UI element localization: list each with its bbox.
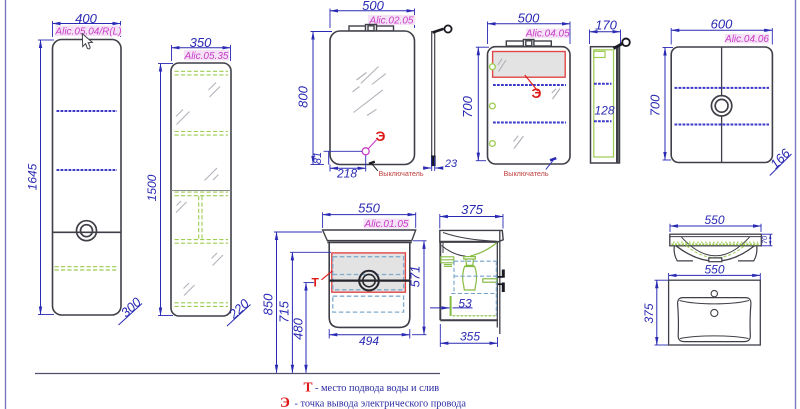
svg-text:700: 700 (648, 94, 663, 116)
svg-text:Alic.05.35: Alic.05.35 (184, 51, 229, 62)
svg-text:375: 375 (461, 202, 483, 217)
svg-text:715: 715 (276, 300, 291, 322)
svg-text:Выключатель: Выключатель (379, 169, 424, 178)
svg-text:218: 218 (336, 167, 357, 181)
svg-text:Т: Т (304, 380, 313, 395)
svg-text:Э: Э (532, 85, 542, 101)
svg-text:Alic.01.05: Alic.01.05 (364, 219, 409, 230)
svg-text:- точка вывода электрического: - точка вывода электрического провода (295, 399, 467, 409)
svg-text:Alic.05.04/R(L): Alic.05.04/R(L) (54, 27, 121, 38)
svg-text:Э: Э (376, 128, 386, 144)
svg-text:81: 81 (312, 152, 324, 164)
svg-text:128: 128 (594, 104, 614, 118)
svg-text:1645: 1645 (26, 163, 40, 190)
svg-text:494: 494 (359, 334, 379, 348)
svg-text:Alic.04.05: Alic.04.05 (525, 29, 570, 40)
svg-text:550: 550 (704, 213, 724, 227)
svg-text:Выключатель: Выключатель (504, 169, 549, 178)
svg-text:800: 800 (296, 85, 311, 107)
svg-text:500: 500 (518, 11, 540, 26)
svg-text:53: 53 (458, 296, 472, 310)
svg-text:23: 23 (444, 158, 458, 170)
svg-text:170: 170 (595, 18, 617, 33)
svg-text:70: 70 (760, 235, 769, 244)
svg-text:Э: Э (280, 395, 290, 409)
svg-text:700: 700 (460, 95, 475, 117)
svg-text:355: 355 (460, 330, 480, 344)
svg-text:1500: 1500 (145, 174, 159, 201)
svg-text:480: 480 (290, 317, 305, 339)
svg-text:571: 571 (408, 266, 423, 288)
svg-text:550: 550 (358, 201, 380, 216)
svg-text:600: 600 (711, 17, 733, 32)
svg-text:- место подвода воды и слив: - место подвода воды и слив (315, 383, 439, 394)
svg-text:Alic.04.06: Alic.04.06 (724, 34, 769, 45)
svg-text:550: 550 (704, 263, 724, 277)
svg-text:850: 850 (261, 293, 276, 315)
svg-text:375: 375 (642, 303, 656, 323)
